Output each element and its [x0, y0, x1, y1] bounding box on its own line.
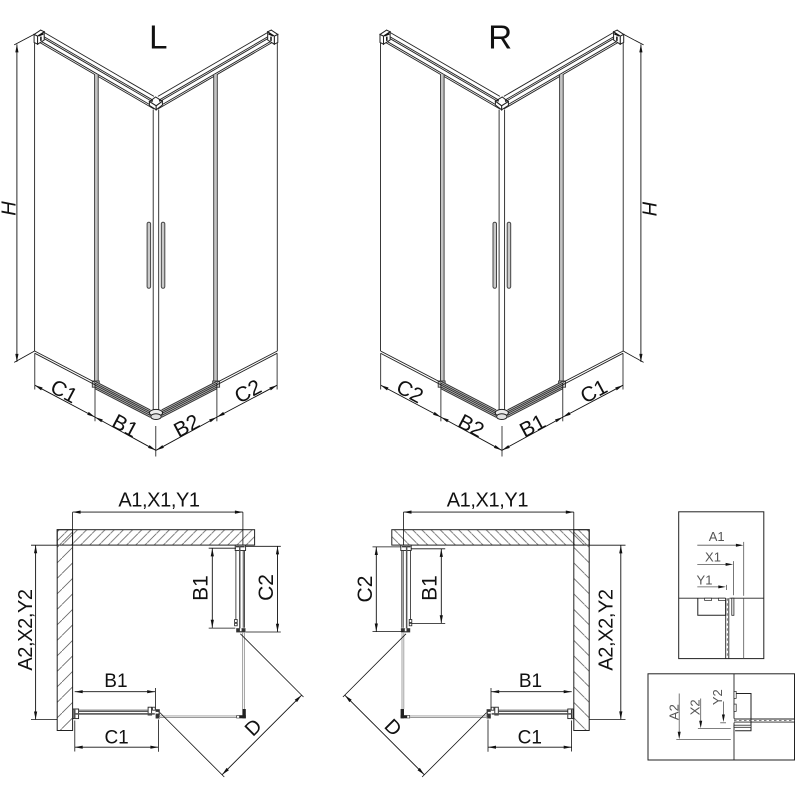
svg-text:C1: C1 — [104, 728, 128, 749]
svg-text:A1: A1 — [709, 529, 725, 544]
svg-text:Y2: Y2 — [710, 689, 725, 705]
svg-text:A1,X1,Y1: A1,X1,Y1 — [447, 490, 529, 512]
svg-text:B1: B1 — [418, 575, 441, 601]
svg-text:C1: C1 — [518, 728, 542, 749]
svg-text:A2,X2,Y2: A2,X2,Y2 — [15, 589, 37, 671]
svg-text:A2: A2 — [666, 704, 681, 720]
svg-text:B1: B1 — [519, 671, 542, 692]
svg-text:A2,X2,Y2: A2,X2,Y2 — [595, 589, 617, 671]
svg-text:C2: C2 — [255, 574, 278, 601]
svg-text:B1: B1 — [104, 671, 127, 692]
svg-text:X2: X2 — [688, 699, 703, 715]
svg-text:B1: B1 — [190, 575, 213, 601]
svg-text:X1: X1 — [705, 549, 721, 564]
svg-text:L: L — [149, 18, 167, 55]
svg-text:A1,X1,Y1: A1,X1,Y1 — [118, 490, 200, 512]
svg-text:C2: C2 — [354, 576, 377, 603]
svg-text:H: H — [638, 201, 660, 216]
svg-text:H: H — [0, 201, 20, 216]
svg-text:Y1: Y1 — [697, 573, 713, 588]
svg-text:R: R — [488, 18, 512, 55]
